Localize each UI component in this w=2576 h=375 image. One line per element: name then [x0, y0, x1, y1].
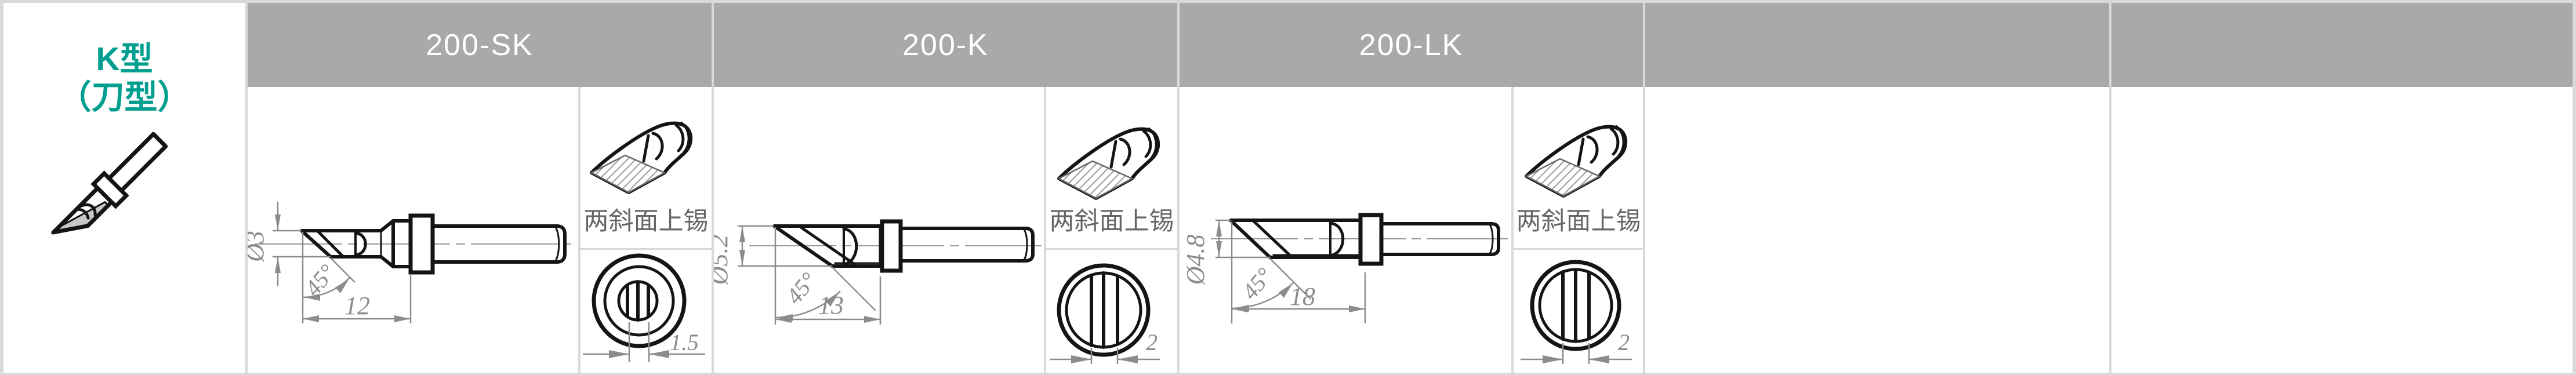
cad-side-view-200-SK: Ø3 45° 12 [248, 87, 578, 373]
end-view-200-K: 2 [1046, 250, 1177, 373]
drawing-cell-200-LK: Ø4.8 45° 18 [1180, 87, 1511, 373]
diameter-dim-label: Ø5.2 [714, 235, 733, 286]
drawing-cell-200-SK: Ø3 45° 12 [248, 87, 578, 373]
tip-width-dim-label: 1.5 [670, 329, 699, 355]
empty-body-cell-2 [2111, 87, 2573, 373]
tip-width-dim-label: 2 [1618, 329, 1630, 355]
bevel-view-cell-200-LK: 两斜面上锡 [1514, 87, 1643, 248]
tinning-note: 两斜面上锡 [584, 207, 709, 235]
length-dim-label: 12 [344, 292, 370, 320]
bevel-3d-view-200-LK: 两斜面上锡 [1514, 87, 1643, 248]
cad-side-view-200-K: Ø5.2 45° 13 [714, 87, 1044, 373]
model-label: 200-SK [426, 28, 533, 63]
model-label: 200-K [902, 28, 989, 63]
drawing-cell-200-K: Ø5.2 45° 13 [714, 87, 1044, 373]
column-header-empty-1 [1645, 3, 2109, 87]
end-view-cell-200-K: 2 [1046, 250, 1177, 373]
cad-side-view-200-LK: Ø4.8 45° 18 [1180, 87, 1511, 373]
bevel-view-cell-200-K: 两斜面上锡 [1046, 87, 1177, 248]
column-header-200-K: 200-K [714, 3, 1177, 87]
length-dim-label: 13 [818, 291, 844, 319]
column-header-empty-2 [2111, 3, 2573, 87]
angle-dim-label: 45° [781, 267, 821, 309]
tip-overview-drawing [3, 3, 245, 373]
bevel-3d-view-200-K: 两斜面上锡 [1046, 87, 1177, 248]
model-label: 200-LK [1359, 28, 1464, 63]
empty-body-cell-1 [1645, 87, 2109, 373]
tip-width-dim-label: 2 [1146, 329, 1158, 355]
dimension-lines [1521, 343, 1632, 364]
row-label-cell: K型 （刀型） [3, 3, 245, 373]
end-view-200-SK: 1.5 [580, 250, 712, 373]
tinning-note: 两斜面上锡 [1516, 207, 1641, 235]
tinning-note: 两斜面上锡 [1050, 207, 1174, 235]
catalog-table-row: K型 （刀型） 200-SK 200-K 200-LK [0, 0, 2576, 375]
end-view-cell-200-SK: 1.5 [580, 250, 712, 373]
length-dim-label: 18 [1290, 282, 1315, 311]
column-header-200-LK: 200-LK [1180, 3, 1643, 87]
end-view-cell-200-LK: 2 [1514, 250, 1643, 373]
column-header-200-SK: 200-SK [248, 3, 712, 87]
end-view-200-LK: 2 [1514, 250, 1643, 373]
diameter-dim-label: Ø4.8 [1181, 235, 1210, 286]
bevel-3d-view-200-SK: 两斜面上锡 [580, 87, 712, 248]
diameter-dim-label: Ø3 [248, 231, 269, 263]
bevel-view-cell-200-SK: 两斜面上锡 [580, 87, 712, 248]
angle-dim-label: 45° [299, 259, 340, 301]
